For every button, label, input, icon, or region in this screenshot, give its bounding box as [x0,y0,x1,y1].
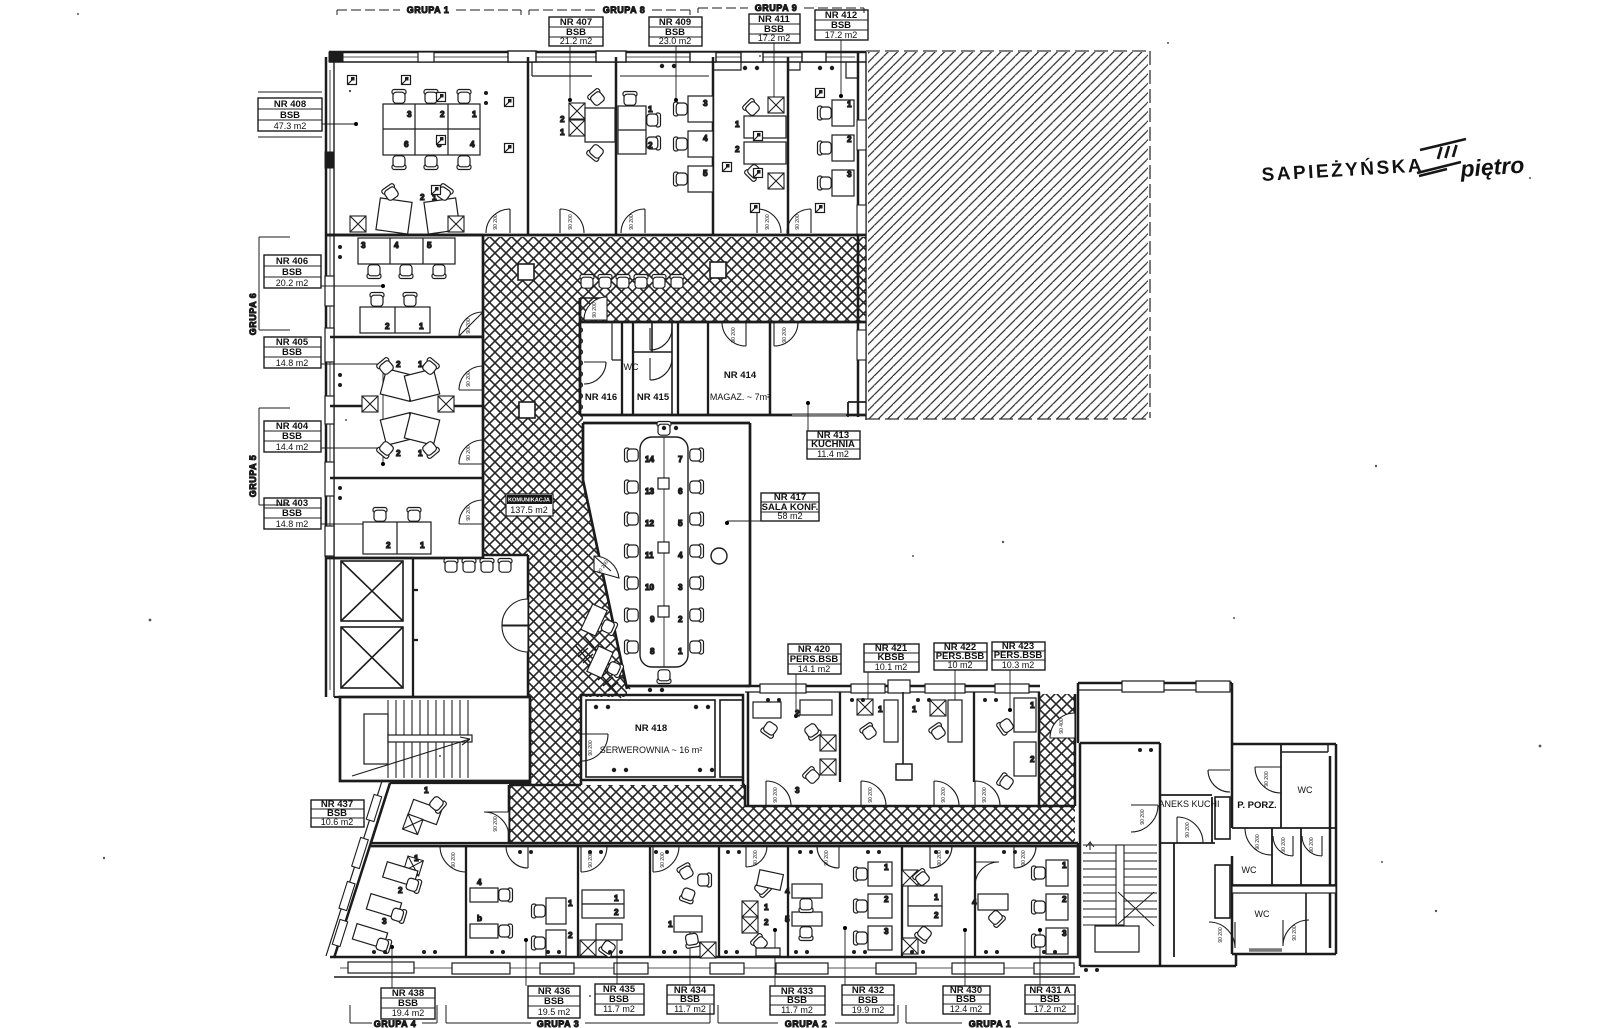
svg-text:2: 2 [614,908,619,917]
svg-text:90 200: 90 200 [1264,771,1270,787]
svg-text:90 200: 90 200 [493,816,499,832]
svg-text:BSB: BSB [544,996,564,1007]
svg-text:1: 1 [668,920,673,929]
svg-text:2: 2 [396,449,401,458]
svg-text:21.2 m2: 21.2 m2 [560,36,593,46]
svg-text:1: 1 [934,893,939,902]
svg-text:6: 6 [678,487,683,496]
svg-text:1: 1 [614,894,619,903]
svg-text:BSB: BSB [282,347,302,358]
svg-text:14.8 m2: 14.8 m2 [276,519,309,529]
svg-text:2: 2 [440,110,445,119]
svg-text:WC: WC [1242,865,1257,875]
svg-text:12.4 m2: 12.4 m2 [950,1004,983,1014]
svg-text:2: 2 [386,541,391,550]
svg-text:17.2 m2: 17.2 m2 [825,30,858,40]
svg-text:GRUPA 6: GRUPA 6 [248,293,258,336]
svg-text:90 200: 90 200 [588,740,594,756]
svg-text:10.3 m2: 10.3 m2 [1002,660,1035,670]
svg-text:10.6 m2: 10.6 m2 [321,817,354,827]
svg-text:90 200: 90 200 [1309,837,1315,853]
svg-text:piętro: piętro [1459,152,1526,182]
svg-text:90 200: 90 200 [1218,927,1224,943]
svg-text:3: 3 [382,917,387,926]
svg-text:90 200: 90 200 [753,850,759,866]
svg-text:4: 4 [785,887,790,896]
svg-text:90 200: 90 200 [592,302,598,318]
svg-text:1: 1 [678,647,683,656]
svg-text:SERWEROWNIA ~ 16 m²: SERWEROWNIA ~ 16 m² [600,745,703,755]
svg-text:1: 1 [420,541,425,550]
svg-text:1: 1 [884,863,889,872]
svg-text:1: 1 [1062,861,1067,870]
svg-text:BSB: BSB [282,267,302,278]
svg-text:47.3 m2: 47.3 m2 [274,121,307,131]
svg-text:17.2 m2: 17.2 m2 [758,33,791,43]
svg-text:10.1 m2: 10.1 m2 [875,662,908,672]
svg-text:P. PORZ.: P. PORZ. [1237,800,1276,811]
svg-text:2: 2 [396,360,401,369]
svg-text:1: 1 [418,449,423,458]
svg-text:2: 2 [934,911,939,920]
svg-text:2: 2 [568,931,573,940]
svg-text:4: 4 [678,551,683,560]
svg-text:1: 1 [560,128,565,137]
svg-text:3: 3 [795,786,800,795]
svg-text:137.5 m2: 137.5 m2 [510,505,548,515]
svg-text:1: 1 [419,322,424,331]
svg-text:2: 2 [648,141,653,150]
svg-text:4: 4 [972,898,977,907]
svg-text:90 200: 90 200 [493,214,499,230]
svg-text:9: 9 [650,615,655,624]
svg-text:10: 10 [645,583,655,592]
svg-text:WC: WC [624,362,639,372]
svg-text:7: 7 [678,455,683,464]
svg-text:NR 416: NR 416 [585,392,617,403]
svg-text:WC: WC [1298,785,1313,795]
svg-text:90 200: 90 200 [588,852,594,868]
svg-text:5: 5 [678,519,683,528]
svg-text:1: 1 [878,705,883,714]
svg-text:2: 2 [795,709,800,718]
svg-text:11.7 m2: 11.7 m2 [674,1004,706,1014]
svg-text:1: 1 [912,705,917,714]
svg-text:14.1 m2: 14.1 m2 [798,664,831,674]
svg-text:ANEKS KUCHI: ANEKS KUCHI [1158,799,1219,809]
svg-text:14.8 m2: 14.8 m2 [276,358,309,368]
svg-text:90 200: 90 200 [1140,809,1146,825]
svg-text:4: 4 [394,241,399,250]
svg-text:5: 5 [785,915,790,924]
svg-text:GRUPA 5: GRUPA 5 [248,455,258,498]
svg-text:GRUPA 9: GRUPA 9 [755,3,798,13]
svg-text:3: 3 [678,583,683,592]
svg-text:17.2 m2: 17.2 m2 [1034,1004,1067,1014]
svg-text:b: b [477,914,482,923]
svg-text:GRUPA 3: GRUPA 3 [537,1019,580,1028]
svg-text:2: 2 [678,615,683,624]
svg-text:90 200: 90 200 [795,214,801,230]
svg-text:11.7 m2: 11.7 m2 [603,1004,635,1014]
svg-text:90 200: 90 200 [982,787,988,803]
svg-text:2: 2 [1030,755,1035,764]
svg-text:90 200: 90 200 [941,787,947,803]
svg-text:4: 4 [477,878,482,887]
svg-text:3: 3 [361,241,366,250]
svg-text:4: 4 [470,140,475,149]
svg-text:90 200: 90 200 [568,214,574,230]
svg-text:90 200: 90 200 [466,445,472,461]
svg-text:3: 3 [884,927,889,936]
svg-text:90 200: 90 200 [782,327,788,343]
svg-text:1: 1 [764,903,769,912]
svg-text:11.4 m2: 11.4 m2 [817,449,849,459]
svg-text:11: 11 [645,551,654,560]
svg-text:1: 1 [735,120,740,129]
svg-text:90 200: 90 200 [937,850,943,866]
svg-text:90 200: 90 200 [1255,834,1261,850]
svg-text:1: 1 [1030,701,1035,710]
svg-text:2: 2 [884,895,889,904]
svg-text:90 200: 90 200 [451,852,457,868]
svg-text:1: 1 [847,100,852,109]
svg-text:5: 5 [703,169,708,178]
svg-text:WC: WC [1255,909,1270,919]
svg-text:11.7 m2: 11.7 m2 [781,1005,813,1015]
svg-text:19.5 m2: 19.5 m2 [538,1007,571,1017]
svg-text:2: 2 [735,145,740,154]
svg-text:10 m2: 10 m2 [947,660,972,670]
svg-text:19.4 m2: 19.4 m2 [392,1008,425,1018]
svg-text:20.2 m2: 20.2 m2 [276,278,309,288]
svg-text:58 m2: 58 m2 [777,511,802,521]
svg-text:90 200: 90 200 [868,787,874,803]
svg-text:90 200: 90 200 [629,214,635,230]
svg-text:90 200: 90 200 [824,850,830,866]
svg-text:2: 2 [398,886,403,895]
svg-text:90 200: 90 200 [660,852,666,868]
svg-text:2: 2 [847,135,852,144]
svg-text:GRUPA 2: GRUPA 2 [785,1019,828,1028]
svg-text:1: 1 [472,110,477,119]
svg-text:2: 2 [560,115,565,124]
svg-text:NR 415: NR 415 [637,392,670,403]
svg-text:2: 2 [1062,895,1067,904]
svg-text:6: 6 [404,140,409,149]
svg-text:90 200: 90 200 [765,214,771,230]
svg-text:NR 418: NR 418 [635,723,667,734]
svg-text:GRUPA 8: GRUPA 8 [603,5,646,15]
svg-text:90 400: 90 400 [1059,718,1065,734]
svg-text:3: 3 [407,110,412,119]
svg-text:GRUPA 1: GRUPA 1 [407,5,450,15]
svg-text:12: 12 [645,519,655,528]
svg-text:KOMUNIKACJA: KOMUNIKACJA [508,498,550,504]
svg-text:90 200: 90 200 [466,505,472,521]
svg-text:NR 406: NR 406 [276,256,308,267]
svg-text:1: 1 [568,899,573,908]
svg-text:5: 5 [427,241,432,250]
svg-text:3: 3 [847,170,852,179]
svg-text:3: 3 [703,99,708,108]
svg-text:90 200: 90 200 [466,318,472,334]
svg-text:90 200: 90 200 [773,787,779,803]
svg-text:NR 408: NR 408 [274,99,306,110]
svg-text:2: 2 [385,322,390,331]
svg-text:19.9 m2: 19.9 m2 [852,1005,885,1015]
svg-text:90 200: 90 200 [1292,925,1298,941]
svg-text:3: 3 [1062,929,1067,938]
svg-text:BSB: BSB [282,431,302,442]
svg-text:GRUPA 4: GRUPA 4 [374,1019,417,1028]
svg-text:14.4 m2: 14.4 m2 [276,442,309,452]
svg-text:2: 2 [764,918,769,927]
svg-text:90 200: 90 200 [1021,850,1027,866]
svg-text:GRUPA 1: GRUPA 1 [969,1019,1012,1028]
svg-text:23.0 m2: 23.0 m2 [659,36,692,46]
svg-text:1: 1 [648,105,653,114]
svg-text:2: 2 [420,193,425,202]
svg-text:14: 14 [645,455,655,464]
svg-text:90 200: 90 200 [1185,822,1191,838]
svg-text:1: 1 [424,786,429,795]
svg-text:90 200: 90 200 [466,371,472,387]
svg-text:1: 1 [418,360,423,369]
svg-text:90 200: 90 200 [1281,837,1287,853]
svg-text:NR 414: NR 414 [724,370,757,381]
svg-text:90 200: 90 200 [731,327,737,343]
svg-text:8: 8 [650,647,655,656]
svg-text:BSB: BSB [280,110,300,121]
svg-text:1: 1 [414,854,419,863]
svg-text:BSB: BSB [282,508,302,519]
svg-text:MAGAZ. ~ 7m²: MAGAZ. ~ 7m² [710,392,770,402]
svg-text:13: 13 [645,487,655,496]
svg-text:4: 4 [703,134,708,143]
